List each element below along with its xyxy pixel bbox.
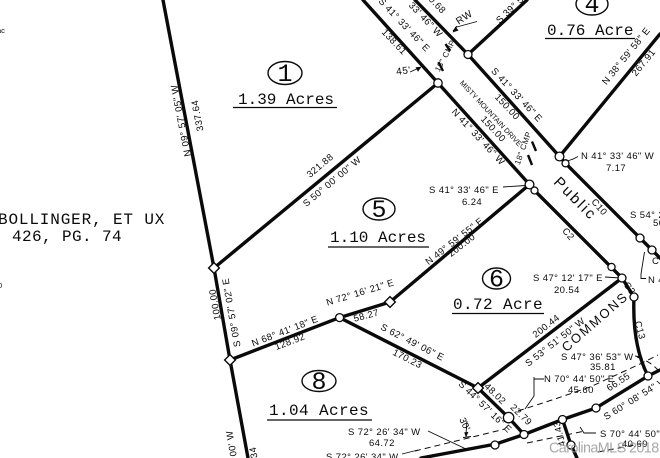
svg-text:35.81: 35.81 — [590, 362, 616, 373]
svg-text:1.04 Acres: 1.04 Acres — [269, 402, 369, 420]
svg-text:0: 0 — [0, 281, 2, 290]
svg-text:S 72° 26' 34" W: S 72° 26' 34" W — [326, 452, 399, 458]
svg-text:C9: C9 — [652, 256, 660, 267]
svg-text:S 72° 26' 34" W: S 72° 26' 34" W — [348, 427, 421, 438]
svg-text:BOLLINGER, ET UX: BOLLINGER, ET UX — [0, 211, 165, 229]
svg-text:20.54: 20.54 — [554, 285, 580, 296]
svg-text:1: 1 — [277, 60, 292, 89]
svg-text:N 41° 33' 46" W: N 41° 33' 46" W — [581, 151, 654, 162]
svg-text:1.10 Acres: 1.10 Acres — [330, 229, 426, 247]
svg-text:S 47° 12' 17" E: S 47° 12' 17" E — [533, 273, 603, 284]
svg-text:0.72 Acre: 0.72 Acre — [453, 296, 543, 314]
svg-text:0.76 Acre: 0.76 Acre — [547, 22, 633, 40]
svg-text:4: 4 — [584, 0, 599, 20]
svg-text:8: 8 — [311, 368, 326, 397]
svg-text:45.60: 45.60 — [568, 385, 594, 396]
svg-text:6.24: 6.24 — [462, 197, 482, 208]
svg-text:1.39 Acres: 1.39 Acres — [238, 91, 334, 109]
svg-text:S 41° 33' 46" E: S 41° 33' 46" E — [429, 185, 499, 196]
svg-text:45': 45' — [396, 65, 412, 78]
svg-text:5: 5 — [371, 196, 386, 225]
svg-text:64.72: 64.72 — [369, 438, 395, 449]
svg-text:34: 34 — [248, 446, 261, 458]
svg-text:6: 6 — [489, 266, 504, 295]
svg-text:426, PG. 74: 426, PG. 74 — [12, 228, 122, 246]
svg-text:ac: ac — [0, 26, 5, 35]
svg-text:CarolinaMLS 2018: CarolinaMLS 2018 — [549, 441, 659, 457]
svg-text:N 70° 44' 50" E: N 70° 44' 50" E — [544, 374, 614, 385]
svg-text:N 41°: N 41° — [648, 275, 660, 286]
svg-text:7.17: 7.17 — [606, 163, 626, 174]
svg-text:56.: 56. — [653, 218, 660, 229]
